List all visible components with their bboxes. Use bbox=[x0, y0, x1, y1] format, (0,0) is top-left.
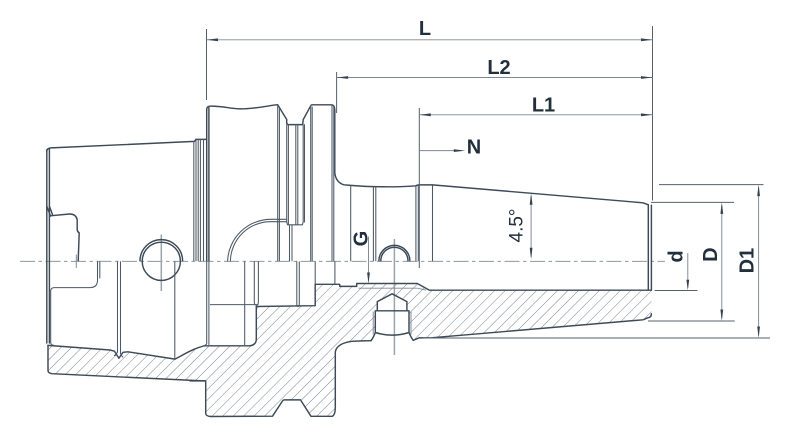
svg-text:d: d bbox=[666, 250, 688, 262]
svg-text:D: D bbox=[700, 247, 722, 261]
svg-text:L: L bbox=[419, 18, 431, 40]
svg-text:D1: D1 bbox=[737, 248, 759, 274]
svg-text:L2: L2 bbox=[487, 57, 510, 79]
svg-text:G: G bbox=[351, 231, 373, 247]
svg-text:4.5°: 4.5° bbox=[507, 208, 528, 242]
svg-text:L1: L1 bbox=[532, 95, 555, 117]
svg-text:N: N bbox=[467, 137, 481, 159]
